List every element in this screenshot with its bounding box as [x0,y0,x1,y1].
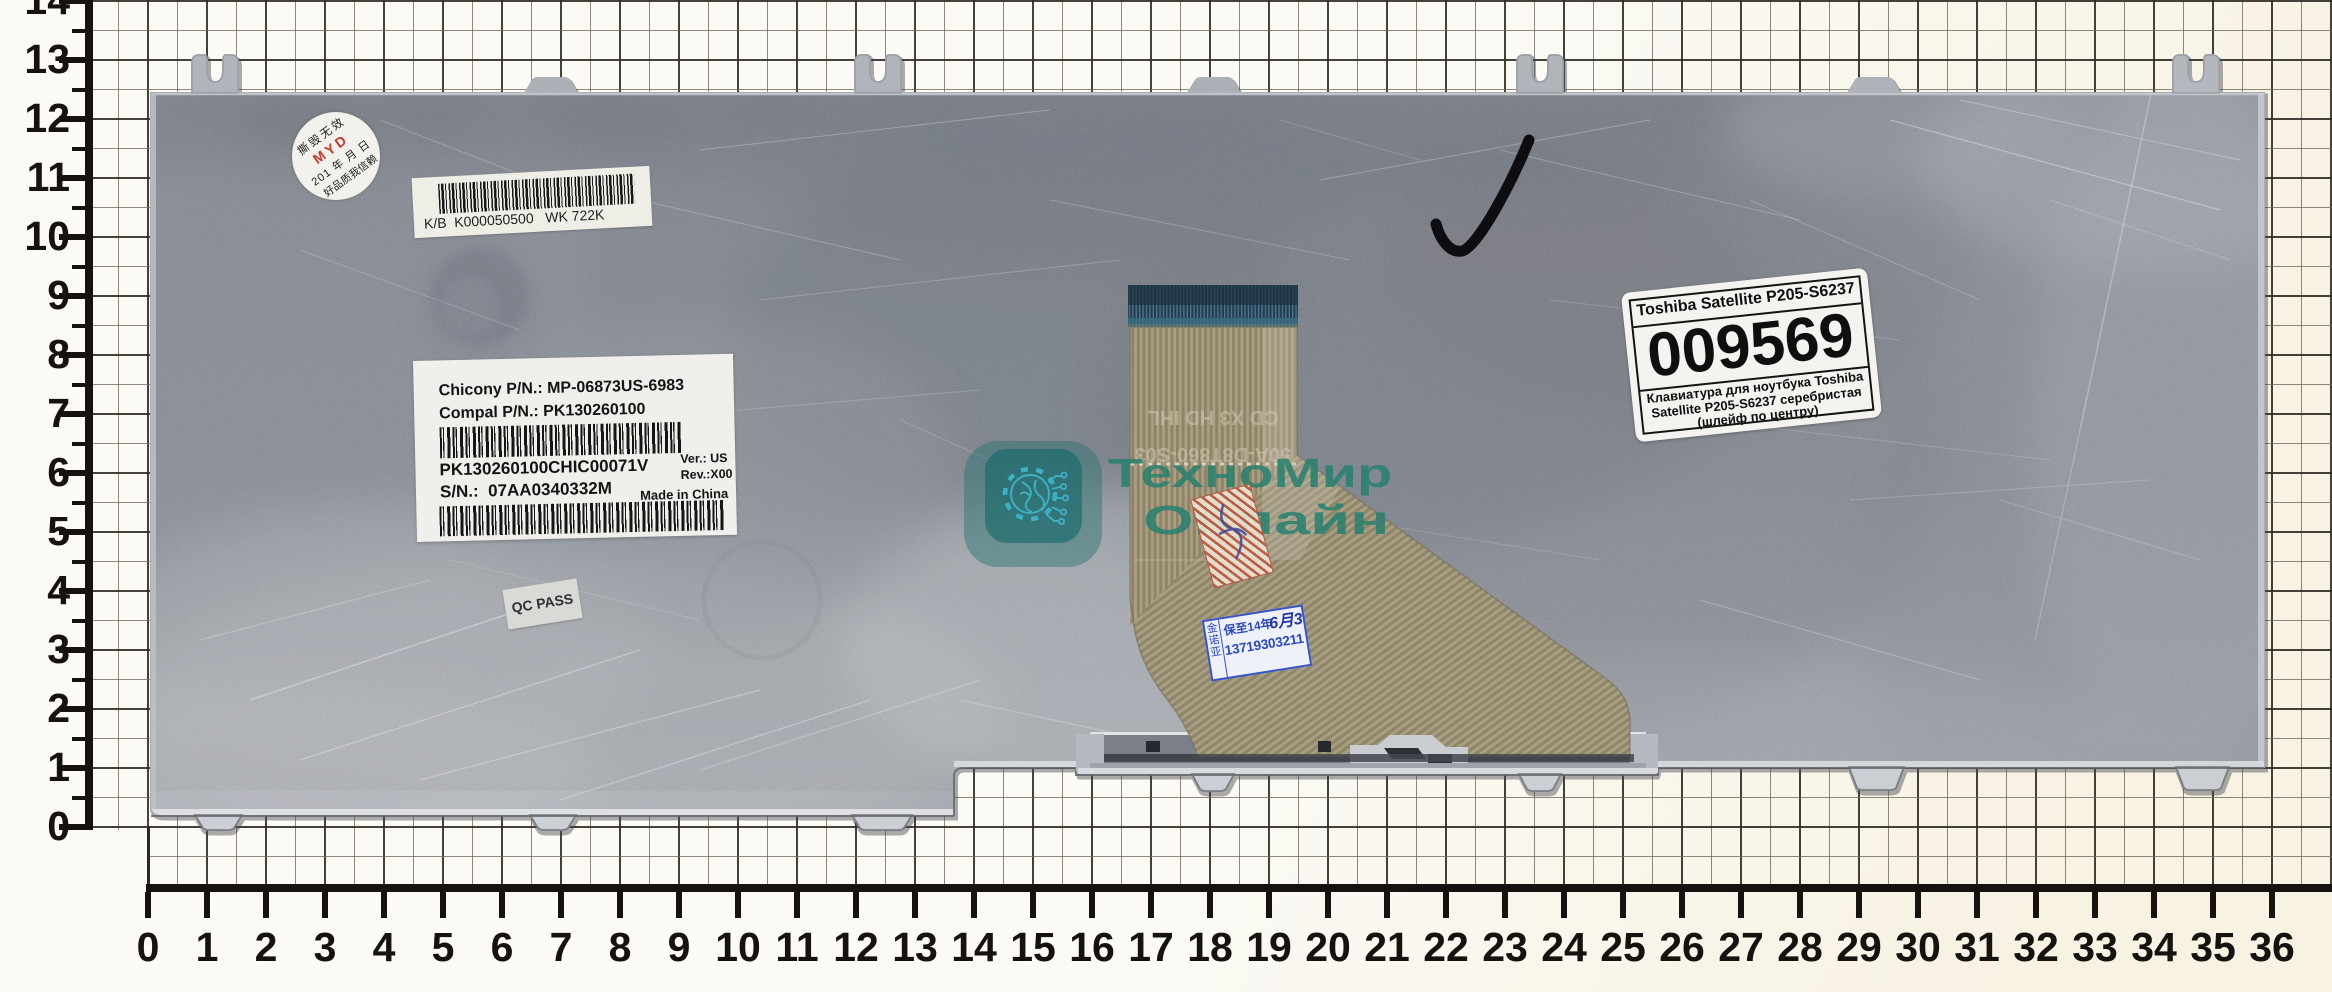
svg-text:CD X3 HD IHL: CD X3 HD IHL [1147,406,1278,428]
